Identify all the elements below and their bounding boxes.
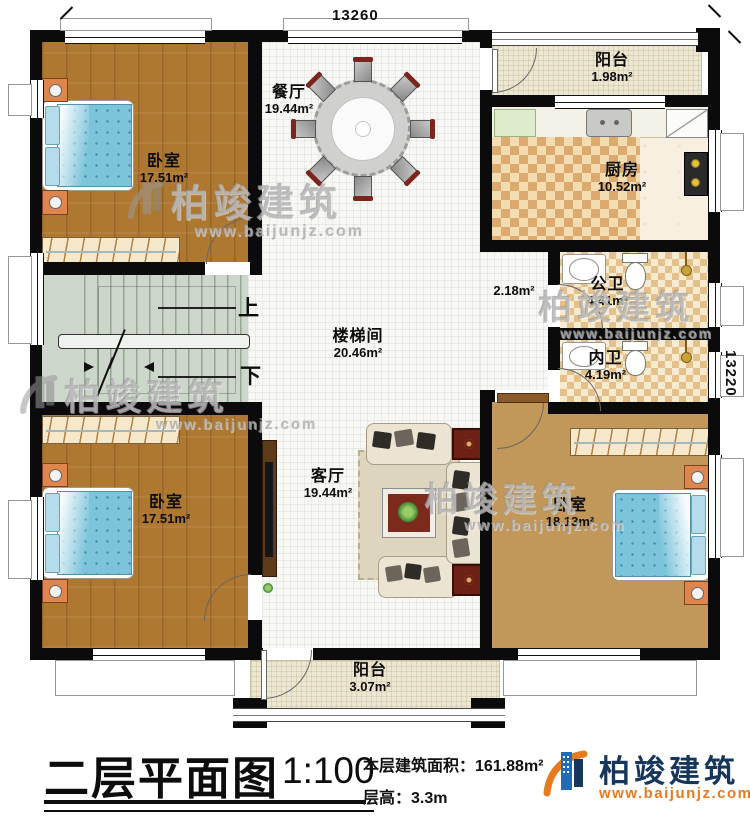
nightstand <box>42 78 68 102</box>
window <box>30 80 44 118</box>
watermark-url: www.baijunjz.com <box>156 416 317 433</box>
window-sill <box>8 84 32 116</box>
floor-height-row: 层高：3.3m <box>363 784 447 808</box>
floor-area-row: 本层建筑面积：161.88m² <box>363 752 544 776</box>
watermark: 柏竣建筑 www.baijunjz.com <box>424 472 625 534</box>
nightstand <box>42 190 68 215</box>
title-block: 二层平面图 1:100 本层建筑面积：161.88m² 层高：3.3m 柏竣建筑… <box>0 738 750 825</box>
room-area: 1.98m² <box>566 70 658 85</box>
room-area: 19.44m² <box>282 486 374 501</box>
kitchen-sink <box>586 109 632 137</box>
dining-chair <box>354 60 372 82</box>
bed-duvet <box>615 493 691 577</box>
room-label-bedroom-bottom-left: 卧室 17.51m² <box>120 494 212 526</box>
brand-website: www.baijunjz.com <box>599 785 750 802</box>
window <box>555 95 665 109</box>
shower-head-icon <box>681 352 692 363</box>
dimension-top: 13260 <box>332 7 379 24</box>
room-label-balcony-bottom: 阳台 3.07m² <box>324 662 416 694</box>
plan-title: 二层平面图 <box>44 742 279 807</box>
room-name: 卧室 <box>120 494 212 512</box>
watermark-text: 柏竣建筑 <box>170 183 342 225</box>
room-label-kitchen: 厨房 10.52m² <box>576 162 668 194</box>
watermark-text: 柏竣建筑 <box>424 481 580 519</box>
wall <box>708 28 720 660</box>
cutting-board <box>494 109 536 137</box>
floor-area-label: 本层建筑面积： <box>363 758 475 775</box>
watermark-text: 柏竣建筑 <box>538 289 694 327</box>
window <box>30 253 44 345</box>
watermark: 柏竣建筑 www.baijunjz.com <box>538 280 713 341</box>
stair-handrail <box>58 334 250 349</box>
burner-icon <box>691 159 700 168</box>
window-sill <box>60 18 212 31</box>
room-area: 4.19m² <box>563 368 648 383</box>
pillow <box>45 493 60 532</box>
axis-tick <box>728 30 741 43</box>
tv <box>265 462 273 557</box>
room-label-dining: 餐厅 19.44m² <box>243 84 335 116</box>
pillow <box>691 495 706 534</box>
brand-logo-icon <box>540 746 594 800</box>
dimension-right: 13220 <box>722 350 739 397</box>
pillow <box>45 106 60 145</box>
coffee-table-plant <box>398 502 418 522</box>
eave-outline <box>55 660 235 696</box>
room-name: 楼梯间 <box>312 328 404 346</box>
wall <box>480 95 492 252</box>
room-name: 餐厅 <box>243 84 335 102</box>
window-sill <box>8 256 32 344</box>
room-name: 内卫 <box>563 350 648 368</box>
window-sill <box>720 458 744 557</box>
cushion <box>404 563 422 580</box>
eave-outline <box>503 660 697 696</box>
door-opening <box>480 48 492 90</box>
floor-height-value: 3.3m <box>411 790 447 807</box>
room-name: 阳台 <box>324 662 416 680</box>
room-label-living: 客厅 19.44m² <box>282 468 374 500</box>
room-label-stairwell: 楼梯间 20.46m² <box>312 328 404 360</box>
watermark-text: 柏竣建筑 <box>64 376 228 417</box>
stove <box>684 152 708 196</box>
room-label-balcony-top: 阳台 1.98m² <box>566 52 658 84</box>
burner-icon <box>691 178 700 187</box>
floor-height-label: 层高： <box>363 790 411 807</box>
wardrobe <box>570 428 710 456</box>
watermark: 柏竣建筑 www.baijunjz.com <box>124 172 364 241</box>
window-sill <box>720 286 744 326</box>
cushion <box>385 565 403 582</box>
wardrobe <box>42 237 180 265</box>
sofa-bottom <box>378 556 458 598</box>
watermark-url: www.baijunjz.com <box>464 517 625 534</box>
watermark-url: www.baijunjz.com <box>194 223 364 241</box>
room-area: 20.46m² <box>312 346 404 361</box>
pillow <box>691 536 706 575</box>
watermark-url: www.baijunjz.com <box>560 325 713 341</box>
floor-area-value: 161.88m² <box>475 758 544 775</box>
leader-line <box>158 307 236 309</box>
nightstand <box>684 581 710 605</box>
cushion <box>452 538 471 558</box>
floor-plan-canvas: 卧室 17.51m² 餐厅 19.44m² 阳台 1.98m² 厨房 10.52… <box>0 0 750 825</box>
balcony-railing <box>492 32 698 46</box>
wall-column <box>696 28 720 52</box>
door-leaf <box>497 393 549 403</box>
door-leaf <box>492 49 498 93</box>
window <box>30 497 44 580</box>
watermark-logo-icon <box>16 370 64 418</box>
dining-table-center <box>355 121 371 137</box>
dining-chair <box>410 120 432 138</box>
room-name: 厨房 <box>576 162 668 180</box>
cushion <box>423 566 441 583</box>
cushion <box>416 432 436 450</box>
pillow <box>45 147 60 186</box>
room-area: 19.44m² <box>243 102 335 117</box>
title-underline <box>44 810 374 812</box>
room-label-private-bath: 内卫 4.19m² <box>563 350 648 382</box>
window-sill <box>8 500 32 579</box>
cushion <box>394 429 414 448</box>
title-underline <box>44 800 366 804</box>
window <box>288 30 462 44</box>
nightstand <box>42 579 68 603</box>
floor-plan: 卧室 17.51m² 餐厅 19.44m² 阳台 1.98m² 厨房 10.52… <box>0 0 750 738</box>
stairs-up-label: 上 <box>238 292 259 322</box>
door-leaf <box>261 650 267 700</box>
room-area: 3.07m² <box>324 680 416 695</box>
shower-head-icon <box>681 265 692 276</box>
room-area: 17.51m² <box>120 512 212 527</box>
window-sill <box>720 133 744 211</box>
axis-tick <box>708 4 721 17</box>
nightstand <box>684 465 710 489</box>
watermark-logo-icon <box>124 177 170 223</box>
wall <box>480 240 720 252</box>
plan-scale: 1:100 <box>282 750 375 792</box>
fridge <box>666 109 708 138</box>
sofa-top <box>366 423 452 465</box>
watermark: 柏竣建筑 www.baijunjz.com <box>16 368 317 433</box>
nightstand <box>42 463 68 487</box>
window <box>65 30 205 44</box>
cushion <box>372 431 392 449</box>
plant <box>263 583 273 593</box>
balcony-railing <box>233 708 505 722</box>
room-name: 阳台 <box>566 52 658 70</box>
room-name: 客厅 <box>282 468 374 486</box>
dining-chair <box>294 120 316 138</box>
room-name: 卧室 <box>118 153 210 171</box>
pillow <box>45 534 60 573</box>
room-area: 10.52m² <box>576 180 668 195</box>
